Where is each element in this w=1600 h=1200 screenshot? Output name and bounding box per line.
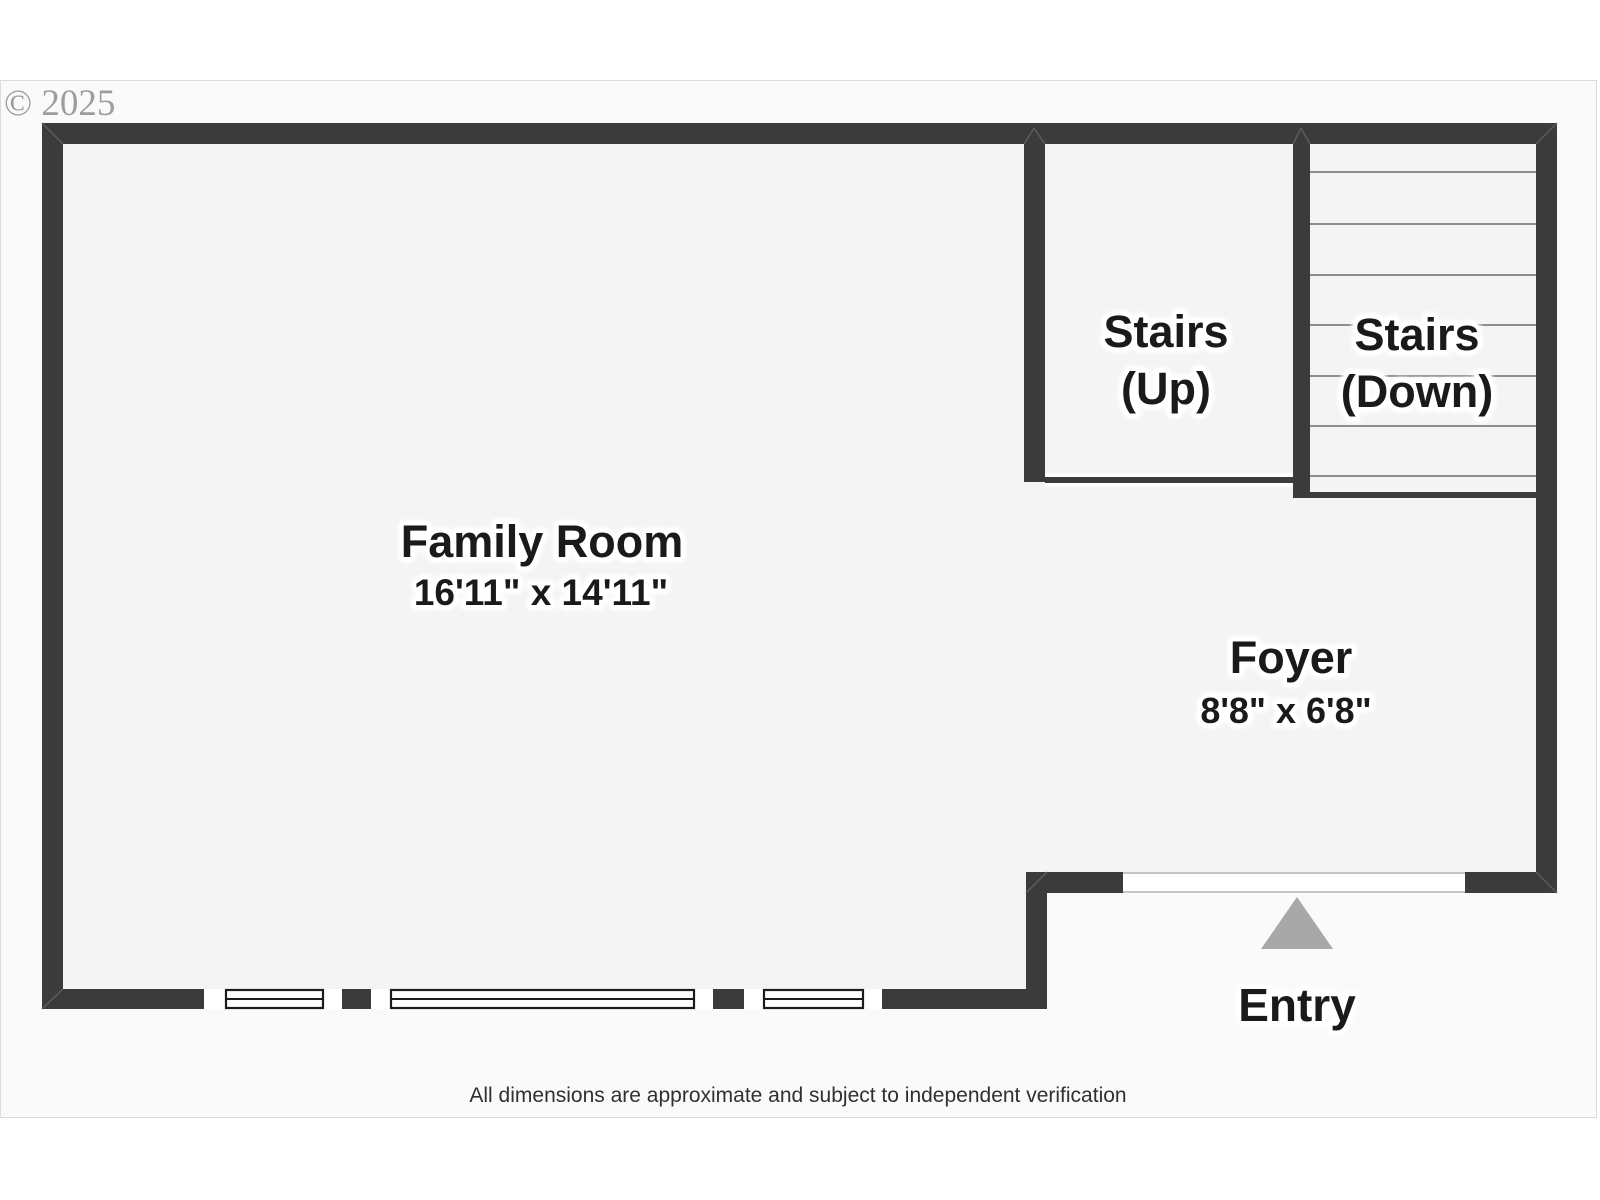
svg-text:(Down): (Down) (1341, 366, 1493, 417)
svg-text:All dimensions are approximate: All dimensions are approximate and subje… (469, 1084, 1126, 1107)
svg-text:Entry: Entry (1238, 979, 1356, 1031)
svg-text:16'11" x 14'11": 16'11" x 14'11" (414, 572, 668, 613)
svg-text:Stairs: Stairs (1103, 306, 1228, 357)
svg-text:Family Room: Family Room (401, 516, 684, 567)
svg-text:Foyer: Foyer (1230, 632, 1353, 683)
svg-text:© 2025: © 2025 (4, 83, 115, 124)
svg-text:(Up): (Up) (1121, 363, 1211, 414)
svg-text:8'8" x 6'8": 8'8" x 6'8" (1200, 690, 1371, 731)
svg-text:Stairs: Stairs (1354, 309, 1479, 360)
